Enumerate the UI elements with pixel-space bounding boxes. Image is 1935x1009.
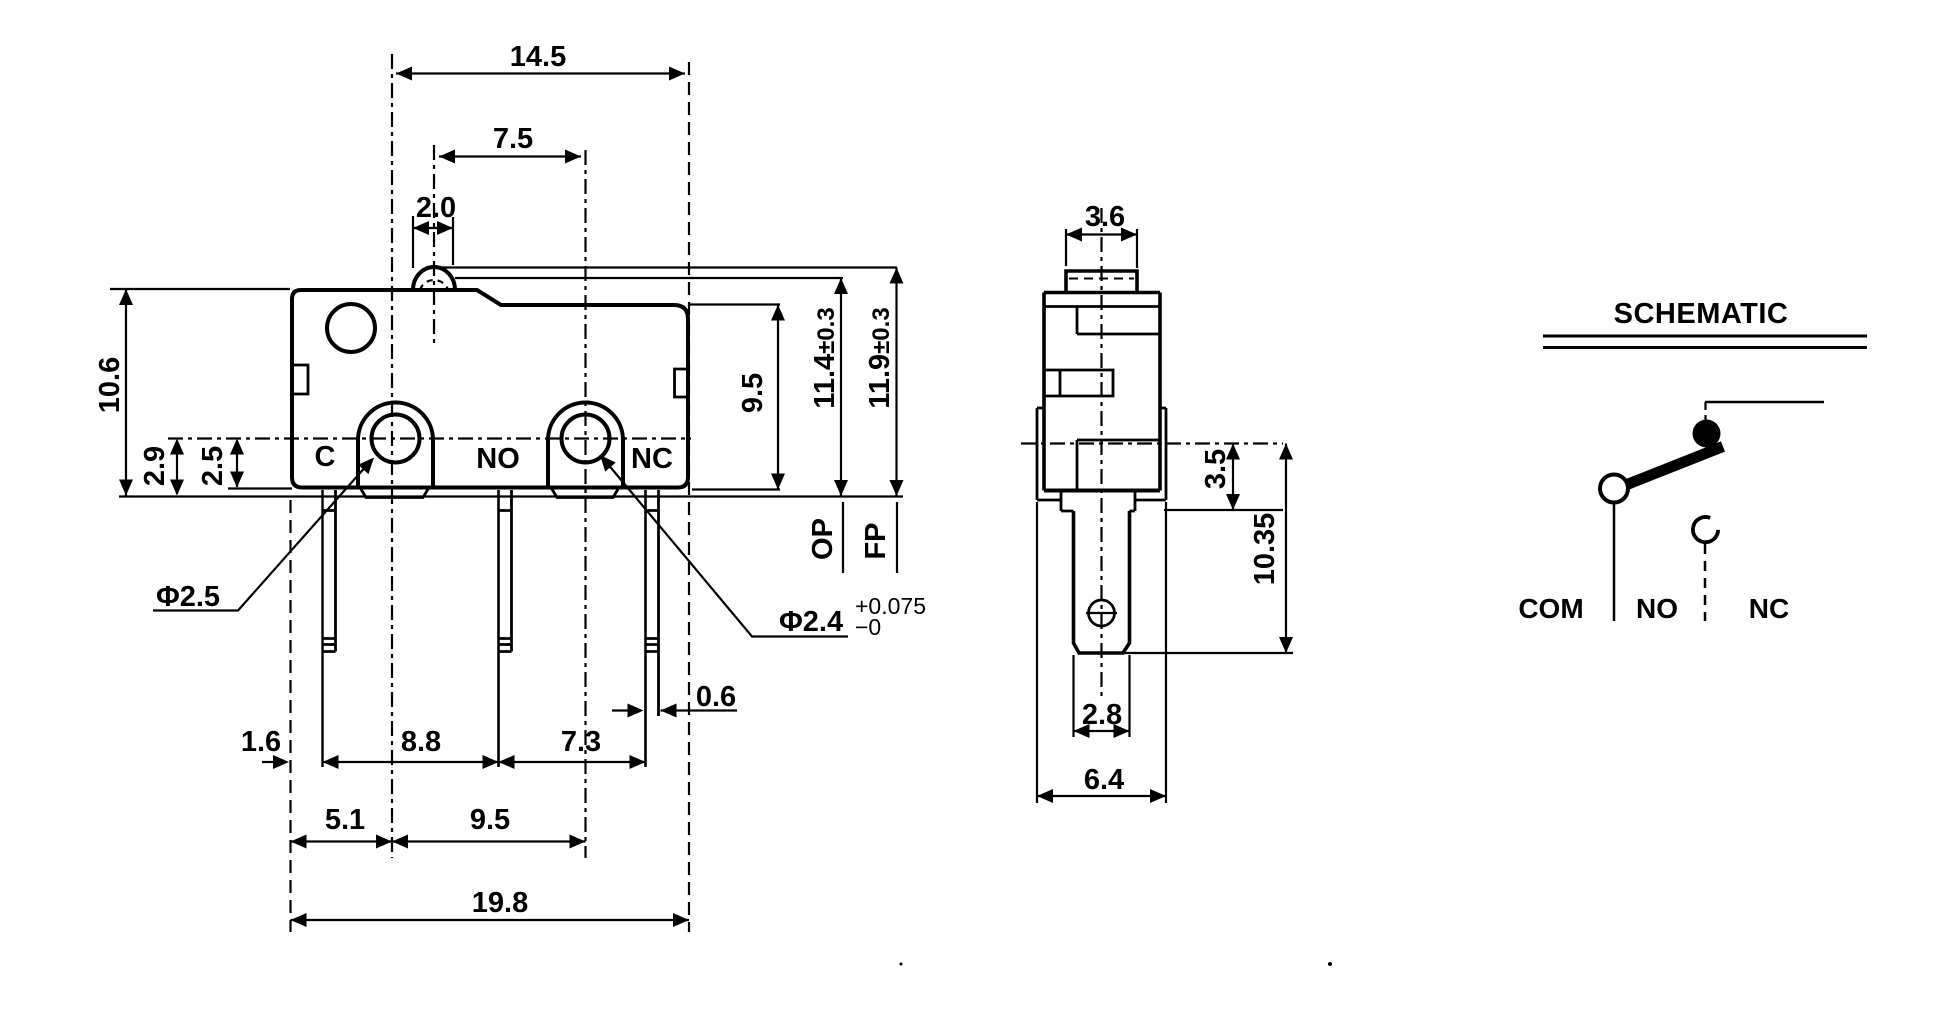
svg-text:0.6: 0.6 [696,681,736,713]
svg-text:19.8: 19.8 [472,887,528,919]
svg-text:11.4±0.3: 11.4±0.3 [809,307,841,408]
svg-text:3.5: 3.5 [1200,449,1232,489]
svg-text:14.5: 14.5 [510,41,566,73]
svg-text:10.35: 10.35 [1249,513,1281,586]
svg-text:2.8: 2.8 [1082,699,1122,731]
svg-text:C: C [315,441,336,473]
svg-text:5.1: 5.1 [325,804,365,836]
svg-text:COM: COM [1518,593,1583,624]
svg-text:9.5: 9.5 [737,373,769,413]
svg-text:9.5: 9.5 [470,804,510,836]
svg-text:6.4: 6.4 [1084,764,1124,796]
svg-text:11.9±0.3: 11.9±0.3 [864,307,896,408]
svg-text:Φ2.5: Φ2.5 [156,581,220,613]
svg-text:NO: NO [1636,593,1678,624]
svg-text:7.5: 7.5 [493,123,533,155]
svg-text:2.5: 2.5 [197,446,229,486]
svg-text:OP: OP [807,518,839,560]
svg-text:SCHEMATIC: SCHEMATIC [1614,298,1789,330]
svg-text:3.6: 3.6 [1085,201,1125,233]
svg-text:2.9: 2.9 [139,446,171,486]
svg-text:1.6: 1.6 [241,726,281,758]
svg-text:Φ2.4: Φ2.4 [779,606,843,638]
svg-text:7.3: 7.3 [561,726,601,758]
svg-text:10.6: 10.6 [94,357,126,413]
svg-text:NC: NC [1749,593,1789,624]
svg-text:FP: FP [860,522,892,559]
svg-text:NC: NC [631,443,673,475]
svg-text:8.8: 8.8 [401,726,441,758]
svg-text:NO: NO [476,443,520,475]
svg-text:2.0: 2.0 [416,192,456,224]
svg-text:−0: −0 [855,614,881,640]
